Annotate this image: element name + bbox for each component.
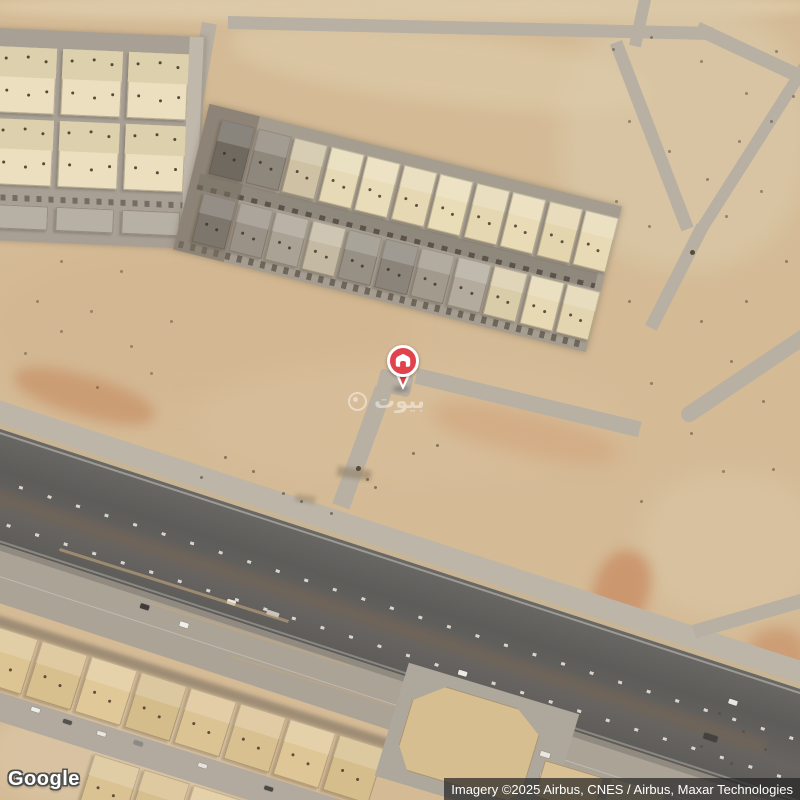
roof-detail [568, 313, 572, 317]
roof-detail [192, 722, 196, 726]
desert-speckle [785, 260, 788, 263]
roof-detail [341, 768, 345, 772]
desert-speckle [612, 48, 615, 51]
roof-detail [440, 206, 444, 210]
roof-detail [295, 169, 299, 173]
desert-speckle [640, 500, 643, 503]
attribution-text: Imagery ©2025 Airbus, CNES / Airbus, Max… [451, 782, 793, 797]
roof-detail [157, 715, 161, 719]
roof-detail [252, 237, 256, 241]
outbuilding [55, 207, 114, 234]
roof-detail [586, 242, 590, 246]
desert-speckle [668, 150, 671, 153]
marker-circle [387, 345, 419, 377]
desert-speckle [252, 470, 255, 473]
roof-detail [496, 294, 500, 298]
villa-cluster [60, 49, 123, 118]
house-icon [390, 348, 416, 374]
roof-detail [215, 228, 219, 232]
desert-speckle [700, 320, 703, 323]
roof-detail [331, 178, 335, 182]
roof-detail [342, 185, 346, 189]
roof-detail [89, 130, 92, 133]
watermark-text: بيوت [374, 389, 425, 413]
desert-speckle [760, 190, 763, 193]
roof-detail [71, 59, 74, 62]
roof-detail [306, 762, 310, 766]
roof-highlight [581, 210, 619, 240]
roof-detail [415, 203, 419, 207]
desert-speckle [36, 300, 39, 303]
roof-detail [487, 221, 491, 225]
roof-detail [68, 163, 71, 166]
roof-detail [378, 194, 382, 198]
roof-detail [2, 160, 5, 163]
roof-detail [173, 138, 176, 141]
desert-speckle [648, 225, 651, 228]
roof-detail [256, 746, 260, 750]
roof-detail [288, 246, 292, 250]
outbuilding [121, 210, 180, 237]
desert-speckle [762, 400, 765, 403]
roof-detail [207, 731, 211, 735]
roof-detail [259, 160, 263, 164]
roof-detail [8, 668, 12, 672]
roof-detail [137, 62, 140, 65]
roof-detail [306, 176, 310, 180]
roof-detail [269, 167, 273, 171]
villa-cluster [123, 124, 186, 193]
desert-speckle [60, 260, 63, 263]
google-logo[interactable]: Google [8, 768, 80, 791]
desert-speckle [224, 456, 227, 459]
desert-speckle [775, 50, 778, 53]
desert-speckle [650, 382, 653, 385]
desert-speckle [412, 452, 415, 455]
roof-detail [93, 96, 96, 99]
attribution-bar: Imagery ©2025 Airbus, CNES / Airbus, Max… [444, 778, 800, 800]
villa-roof [128, 52, 189, 85]
residential-block-northwest [0, 28, 206, 249]
location-marker[interactable] [386, 344, 420, 392]
desert-speckle [700, 745, 703, 748]
roof-detail [532, 303, 536, 307]
roof-detail [404, 197, 408, 201]
roof-detail [134, 166, 137, 169]
roof-detail [67, 131, 70, 134]
roof-detail [24, 165, 27, 168]
desert-speckle [764, 748, 767, 751]
roof-detail [324, 255, 328, 259]
villa-roof [62, 49, 123, 82]
roof-detail [27, 94, 30, 97]
desert-speckle [745, 300, 748, 303]
desert-speckle [374, 486, 377, 489]
roof-detail [45, 60, 48, 63]
roof-detail [5, 56, 8, 59]
desert-speckle [722, 470, 725, 473]
roof-detail [470, 292, 474, 296]
villa-roof [125, 124, 186, 157]
roof-detail [176, 66, 179, 69]
roof-detail [108, 699, 112, 703]
roof-detail [242, 737, 246, 741]
desert-speckle [792, 95, 795, 98]
desert-speckle [170, 320, 173, 323]
roof-detail [222, 151, 226, 155]
roof-detail [111, 794, 115, 798]
desert-speckle [200, 476, 203, 479]
roof-detail [524, 231, 528, 235]
desert-speckle [300, 500, 303, 503]
desert-speckle [628, 300, 631, 303]
desert-speckle [96, 386, 99, 389]
roof-detail [356, 777, 360, 781]
desert-speckle [725, 215, 728, 218]
roof-detail [314, 249, 318, 253]
roof-detail [386, 267, 390, 271]
roof-detail [174, 168, 177, 171]
desert-speckle [690, 250, 695, 255]
desert-speckle [24, 352, 27, 355]
roof-detail [156, 171, 159, 174]
desert-speckle [700, 60, 703, 63]
desert-speckle [330, 512, 333, 515]
roof-highlight [563, 284, 601, 312]
map-watermark: بيوت [348, 389, 425, 413]
roof-detail [368, 188, 372, 192]
roof-detail [459, 285, 463, 289]
roof-detail [5, 89, 8, 92]
desert-speckle [60, 330, 63, 333]
roof-detail [477, 215, 481, 219]
roof-detail [177, 96, 180, 99]
roof-detail [205, 222, 209, 226]
roof-highlight [399, 165, 437, 195]
villa-cluster [0, 118, 54, 187]
roof-detail [93, 58, 96, 61]
roof-detail [350, 258, 354, 262]
roof-detail [159, 61, 162, 64]
roof-detail [137, 94, 140, 97]
roof-detail [93, 690, 97, 694]
desert-speckle [628, 120, 631, 123]
desert-speckle [282, 492, 285, 495]
roof-detail [71, 91, 74, 94]
bayut-circle-logo-icon [348, 392, 367, 411]
desert-speckle [150, 372, 153, 375]
roof-detail [1, 128, 4, 131]
roof-detail [43, 675, 47, 679]
villa-roof [0, 118, 54, 151]
roof-highlight [326, 147, 364, 177]
roof-highlight [253, 128, 291, 158]
villa-cluster [0, 46, 57, 115]
desert-speckle [120, 270, 123, 273]
roof-detail [45, 90, 48, 93]
desert-speckle [718, 712, 721, 715]
roof-detail [241, 231, 245, 235]
roof-highlight [289, 137, 327, 167]
roof-detail [560, 240, 564, 244]
desert-speckle [742, 730, 745, 733]
desert-speckle [90, 310, 93, 313]
desert-speckle [770, 120, 773, 123]
desert-speckle [690, 432, 693, 435]
roof-detail [111, 93, 114, 96]
roof-detail [42, 162, 45, 165]
desert-speckle [366, 478, 369, 481]
desert-speckle [130, 345, 133, 348]
car [540, 751, 551, 759]
desert-speckle [356, 466, 361, 471]
desert-speckle [730, 762, 733, 765]
roof-detail [155, 133, 158, 136]
desert-speckle [706, 178, 709, 181]
roof-highlight [435, 174, 473, 204]
desert-speckle [615, 200, 618, 203]
desert-speckle [745, 92, 748, 95]
roof-highlight [471, 183, 509, 213]
sand-patch [640, 470, 800, 620]
outbuilding [0, 204, 48, 231]
roof-detail [108, 165, 111, 168]
roof-detail [159, 99, 162, 102]
roof-detail [96, 786, 100, 790]
roof-detail [513, 224, 517, 228]
desert-speckle [436, 444, 439, 447]
desert-speckle [650, 36, 653, 39]
roof-highlight [362, 156, 400, 186]
roof-detail [423, 276, 427, 280]
roof-detail [277, 240, 281, 244]
roof-detail [110, 63, 113, 66]
roof-detail [291, 753, 295, 757]
satellite-map[interactable]: بيوت Google Imagery ©2025 Airbus, CNES /… [0, 0, 800, 800]
roof-detail [90, 168, 93, 171]
roof-detail [550, 233, 554, 237]
roof-highlight [544, 201, 582, 231]
roof-detail [58, 684, 62, 688]
roof-detail [397, 273, 401, 277]
roof-highlight [508, 192, 546, 222]
roof-detail [142, 706, 146, 710]
building [555, 284, 600, 341]
desert-speckle [772, 468, 775, 471]
roof-detail [451, 212, 455, 216]
roof-detail [434, 283, 438, 287]
villa-roof [0, 46, 57, 79]
villa-cluster [57, 121, 120, 190]
roof-detail [107, 135, 110, 138]
roof-detail [361, 264, 365, 268]
roof-detail [506, 301, 510, 305]
roof-detail [597, 249, 601, 253]
roof-detail [579, 319, 583, 323]
roof-detail [27, 55, 30, 58]
roof-detail [543, 310, 547, 314]
access-road-curve [678, 325, 800, 425]
roof-detail [233, 158, 237, 162]
desert-speckle [738, 140, 741, 143]
villa-cluster [126, 52, 189, 121]
villa-roof [59, 121, 120, 154]
desert-speckle [730, 360, 733, 363]
